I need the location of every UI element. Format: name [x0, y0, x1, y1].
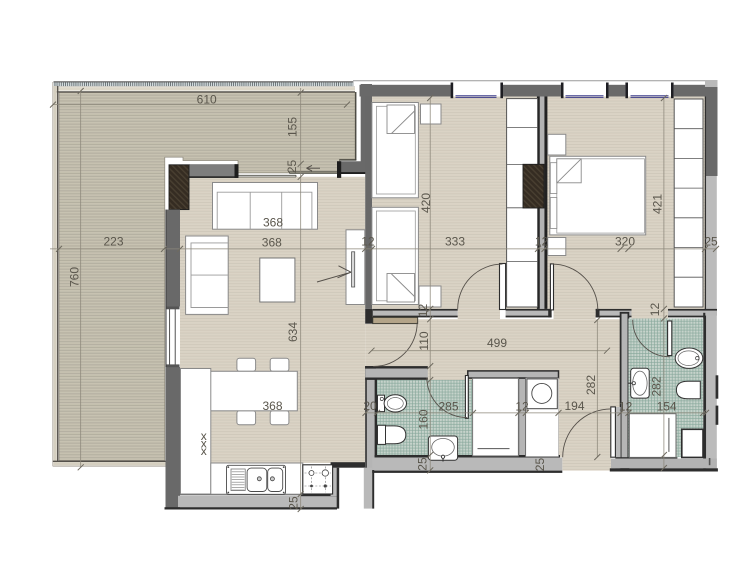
svg-text:420: 420	[419, 193, 433, 213]
svg-text:12: 12	[361, 235, 375, 249]
svg-text:25: 25	[704, 235, 718, 249]
svg-text:194: 194	[564, 399, 584, 413]
svg-text:20: 20	[363, 399, 377, 413]
svg-text:421: 421	[651, 194, 665, 214]
svg-text:223: 223	[103, 235, 123, 249]
svg-text:499: 499	[487, 336, 507, 350]
svg-text:25: 25	[533, 458, 547, 472]
svg-text:160: 160	[417, 409, 431, 429]
svg-text:x: x	[201, 444, 207, 458]
svg-text:282: 282	[650, 376, 664, 396]
svg-text:12: 12	[619, 400, 633, 414]
svg-text:12: 12	[648, 303, 662, 317]
svg-text:285: 285	[438, 400, 458, 414]
svg-text:12: 12	[515, 400, 529, 414]
svg-text:634: 634	[286, 322, 300, 342]
svg-text:155: 155	[285, 117, 299, 137]
svg-text:368: 368	[262, 399, 282, 413]
svg-text:25: 25	[287, 496, 301, 510]
svg-text:368: 368	[263, 216, 283, 230]
svg-text:760: 760	[68, 267, 82, 287]
svg-text:25: 25	[285, 160, 299, 174]
svg-text:154: 154	[657, 400, 677, 414]
svg-text:12: 12	[416, 304, 430, 318]
svg-text:333: 333	[445, 235, 465, 249]
svg-text:320: 320	[615, 235, 635, 249]
svg-text:610: 610	[197, 93, 217, 107]
svg-text:368: 368	[262, 235, 282, 249]
svg-text:282: 282	[584, 375, 598, 395]
svg-text:12: 12	[535, 235, 549, 249]
svg-text:25: 25	[416, 457, 430, 471]
svg-text:110: 110	[417, 331, 431, 350]
